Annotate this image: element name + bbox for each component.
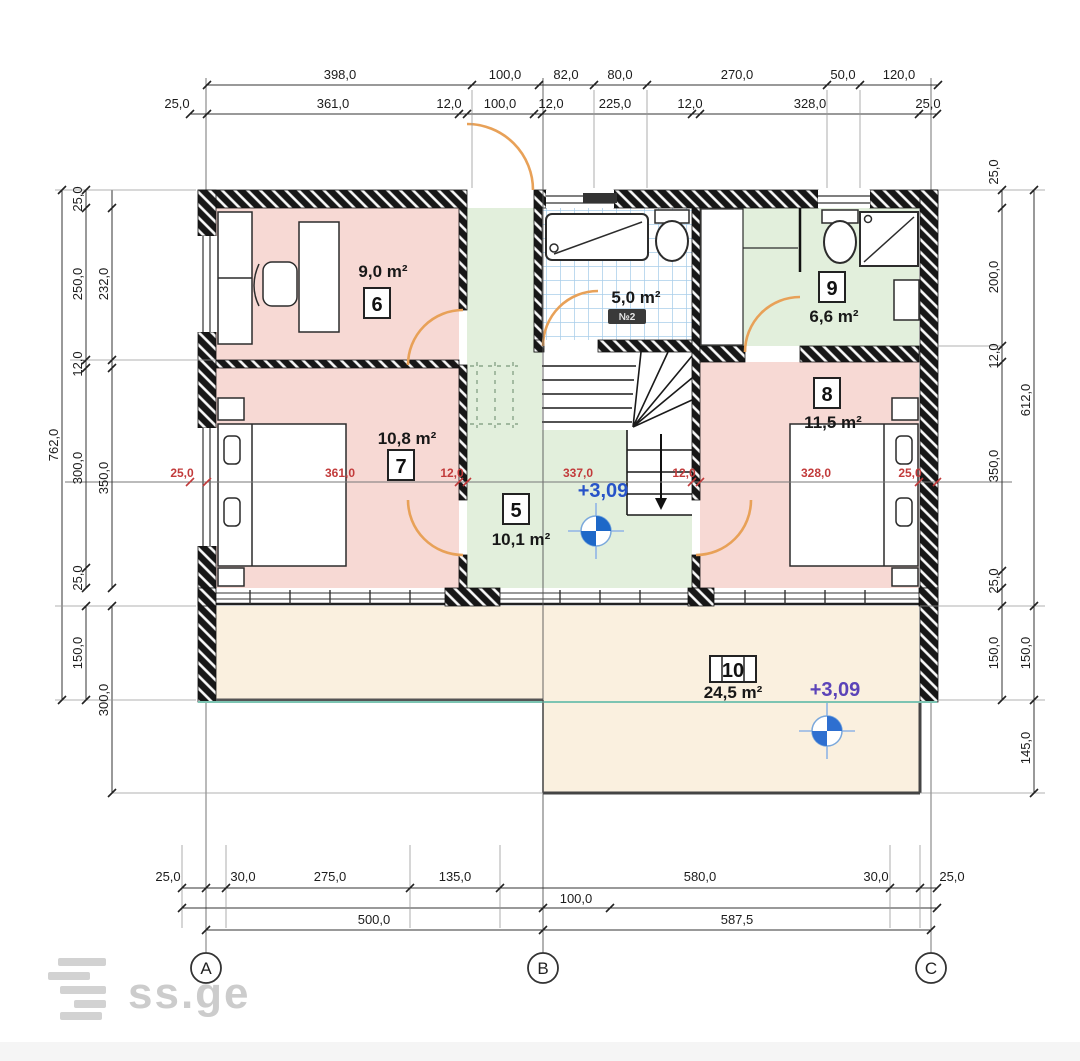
dim-label: 50,0 xyxy=(830,67,855,82)
dim-label: 135,0 xyxy=(439,869,472,884)
room-8-area: 11,5 m² xyxy=(804,413,862,432)
dim-label: 150,0 xyxy=(70,637,85,670)
dim-label: 300,0 xyxy=(96,684,111,717)
room-7-number: 7 xyxy=(395,456,406,478)
axis-label-b: B xyxy=(537,959,548,978)
dim-label: 350,0 xyxy=(986,450,1001,483)
dim-label: 82,0 xyxy=(553,67,578,82)
room-10-area: 24,5 m² xyxy=(704,683,763,702)
dimension-labels-right: 25,0 200,0 12,0 350,0 25,0 150,0 612,0 1… xyxy=(986,159,1033,764)
dim-label: 361,0 xyxy=(317,96,350,111)
room-9-number: 9 xyxy=(826,278,837,300)
dim-label: 120,0 xyxy=(883,67,916,82)
dim-label: 12,0 xyxy=(440,466,464,480)
chair xyxy=(263,262,297,306)
axis-label-c: C xyxy=(925,959,937,978)
dim-label: 500,0 xyxy=(358,912,391,927)
room-6-area: 9,0 m² xyxy=(358,262,407,281)
dim-label: 150,0 xyxy=(1018,637,1033,670)
dim-label: 25,0 xyxy=(70,186,85,211)
dim-label: 361,0 xyxy=(325,466,355,480)
dim-label: 300,0 xyxy=(70,452,85,485)
dim-label: 12,0 xyxy=(677,96,702,111)
bathtub xyxy=(546,214,648,260)
dim-label: 580,0 xyxy=(684,869,717,884)
window-top-bathroom xyxy=(546,190,617,208)
nightstand xyxy=(892,568,918,586)
dim-label: 25,0 xyxy=(170,466,194,480)
dim-label: 275,0 xyxy=(314,869,347,884)
dim-label: 25,0 xyxy=(164,96,189,111)
window-top-room9 xyxy=(818,190,870,208)
dim-label: 762,0 xyxy=(46,429,61,462)
dim-label: 25,0 xyxy=(70,565,85,590)
room-5-number: 5 xyxy=(510,500,521,522)
dim-label: 150,0 xyxy=(986,637,1001,670)
dim-label: 30,0 xyxy=(230,869,255,884)
axis-bubbles: A B C xyxy=(191,953,946,983)
dim-label: 30,0 xyxy=(863,869,888,884)
dim-label: 225,0 xyxy=(599,96,632,111)
nightstand xyxy=(218,398,244,420)
ss-ge-logo-icon xyxy=(48,958,106,1020)
dim-label: 25,0 xyxy=(155,869,180,884)
window-band-south xyxy=(198,588,938,606)
window-left-room6 xyxy=(196,236,218,332)
room-6-number: 6 xyxy=(371,294,382,316)
bathroom-area: 5,0 m² xyxy=(611,288,660,307)
page-bottom-strip xyxy=(0,1042,1080,1061)
dimension-labels-bottom: 25,0 30,0 275,0 135,0 580,0 30,0 25,0 10… xyxy=(155,869,964,927)
dim-label: 100,0 xyxy=(484,96,517,111)
dim-label: 12,0 xyxy=(986,343,1001,368)
floor-plan-page: 25,0 361,0 12,0 337,0 12,0 328,0 25,0 xyxy=(0,0,1080,1061)
desk xyxy=(299,222,339,332)
window-left-room7 xyxy=(196,428,218,546)
dim-label: 80,0 xyxy=(607,67,632,82)
dim-label: 12,0 xyxy=(672,466,696,480)
room-5-area: 10,1 m² xyxy=(492,530,551,549)
dim-label: 200,0 xyxy=(986,261,1001,294)
dimension-labels-left: 762,0 25,0 250,0 12,0 300,0 25,0 232,0 3… xyxy=(46,186,111,716)
elevation-text: +3,09 xyxy=(810,679,861,701)
dim-label: 25,0 xyxy=(915,96,940,111)
room-7-area: 10,8 m² xyxy=(378,429,437,448)
dim-label: 270,0 xyxy=(721,67,754,82)
elevation-text: +3,09 xyxy=(578,480,629,502)
dim-label: 328,0 xyxy=(794,96,827,111)
dim-label: 612,0 xyxy=(1018,384,1033,417)
dim-label: 232,0 xyxy=(96,268,111,301)
toilet-room9 xyxy=(822,210,858,263)
dim-label: 25,0 xyxy=(986,159,1001,184)
nightstand xyxy=(218,568,244,586)
dim-label: 12,0 xyxy=(70,351,85,376)
dim-label: 25,0 xyxy=(939,869,964,884)
shower-cabin xyxy=(860,212,918,266)
dim-label: 12,0 xyxy=(436,96,461,111)
appliance-room9 xyxy=(894,280,919,320)
axis-label-a: A xyxy=(200,959,212,978)
bathroom-badge-text: №2 xyxy=(619,312,636,323)
dim-label: 100,0 xyxy=(560,891,593,906)
dim-label: 337,0 xyxy=(563,466,593,480)
dim-label: 25,0 xyxy=(986,568,1001,593)
room-9-area: 6,6 m² xyxy=(809,307,858,326)
nightstand xyxy=(892,398,918,420)
dim-label: 145,0 xyxy=(1018,732,1033,765)
dim-label: 587,5 xyxy=(721,912,754,927)
dimension-labels-top: 398,0 100,0 82,0 80,0 270,0 50,0 120,0 2… xyxy=(164,67,940,111)
floor-plan-drawing: 25,0 361,0 12,0 337,0 12,0 328,0 25,0 xyxy=(0,0,1080,1061)
room-8-number: 8 xyxy=(821,384,832,406)
room-10-number: 10 xyxy=(722,660,744,682)
dim-label: 12,0 xyxy=(538,96,563,111)
dim-label: 328,0 xyxy=(801,466,831,480)
dim-label: 350,0 xyxy=(96,462,111,495)
dim-label: 100,0 xyxy=(489,67,522,82)
bed-room7 xyxy=(218,398,346,586)
ss-ge-logo-text: ss.ge xyxy=(128,969,251,1018)
dim-label: 398,0 xyxy=(324,67,357,82)
door-entry-top xyxy=(467,124,533,190)
dim-label: 250,0 xyxy=(70,268,85,301)
dim-label: 25,0 xyxy=(898,466,922,480)
toilet-bathroom xyxy=(655,210,689,261)
